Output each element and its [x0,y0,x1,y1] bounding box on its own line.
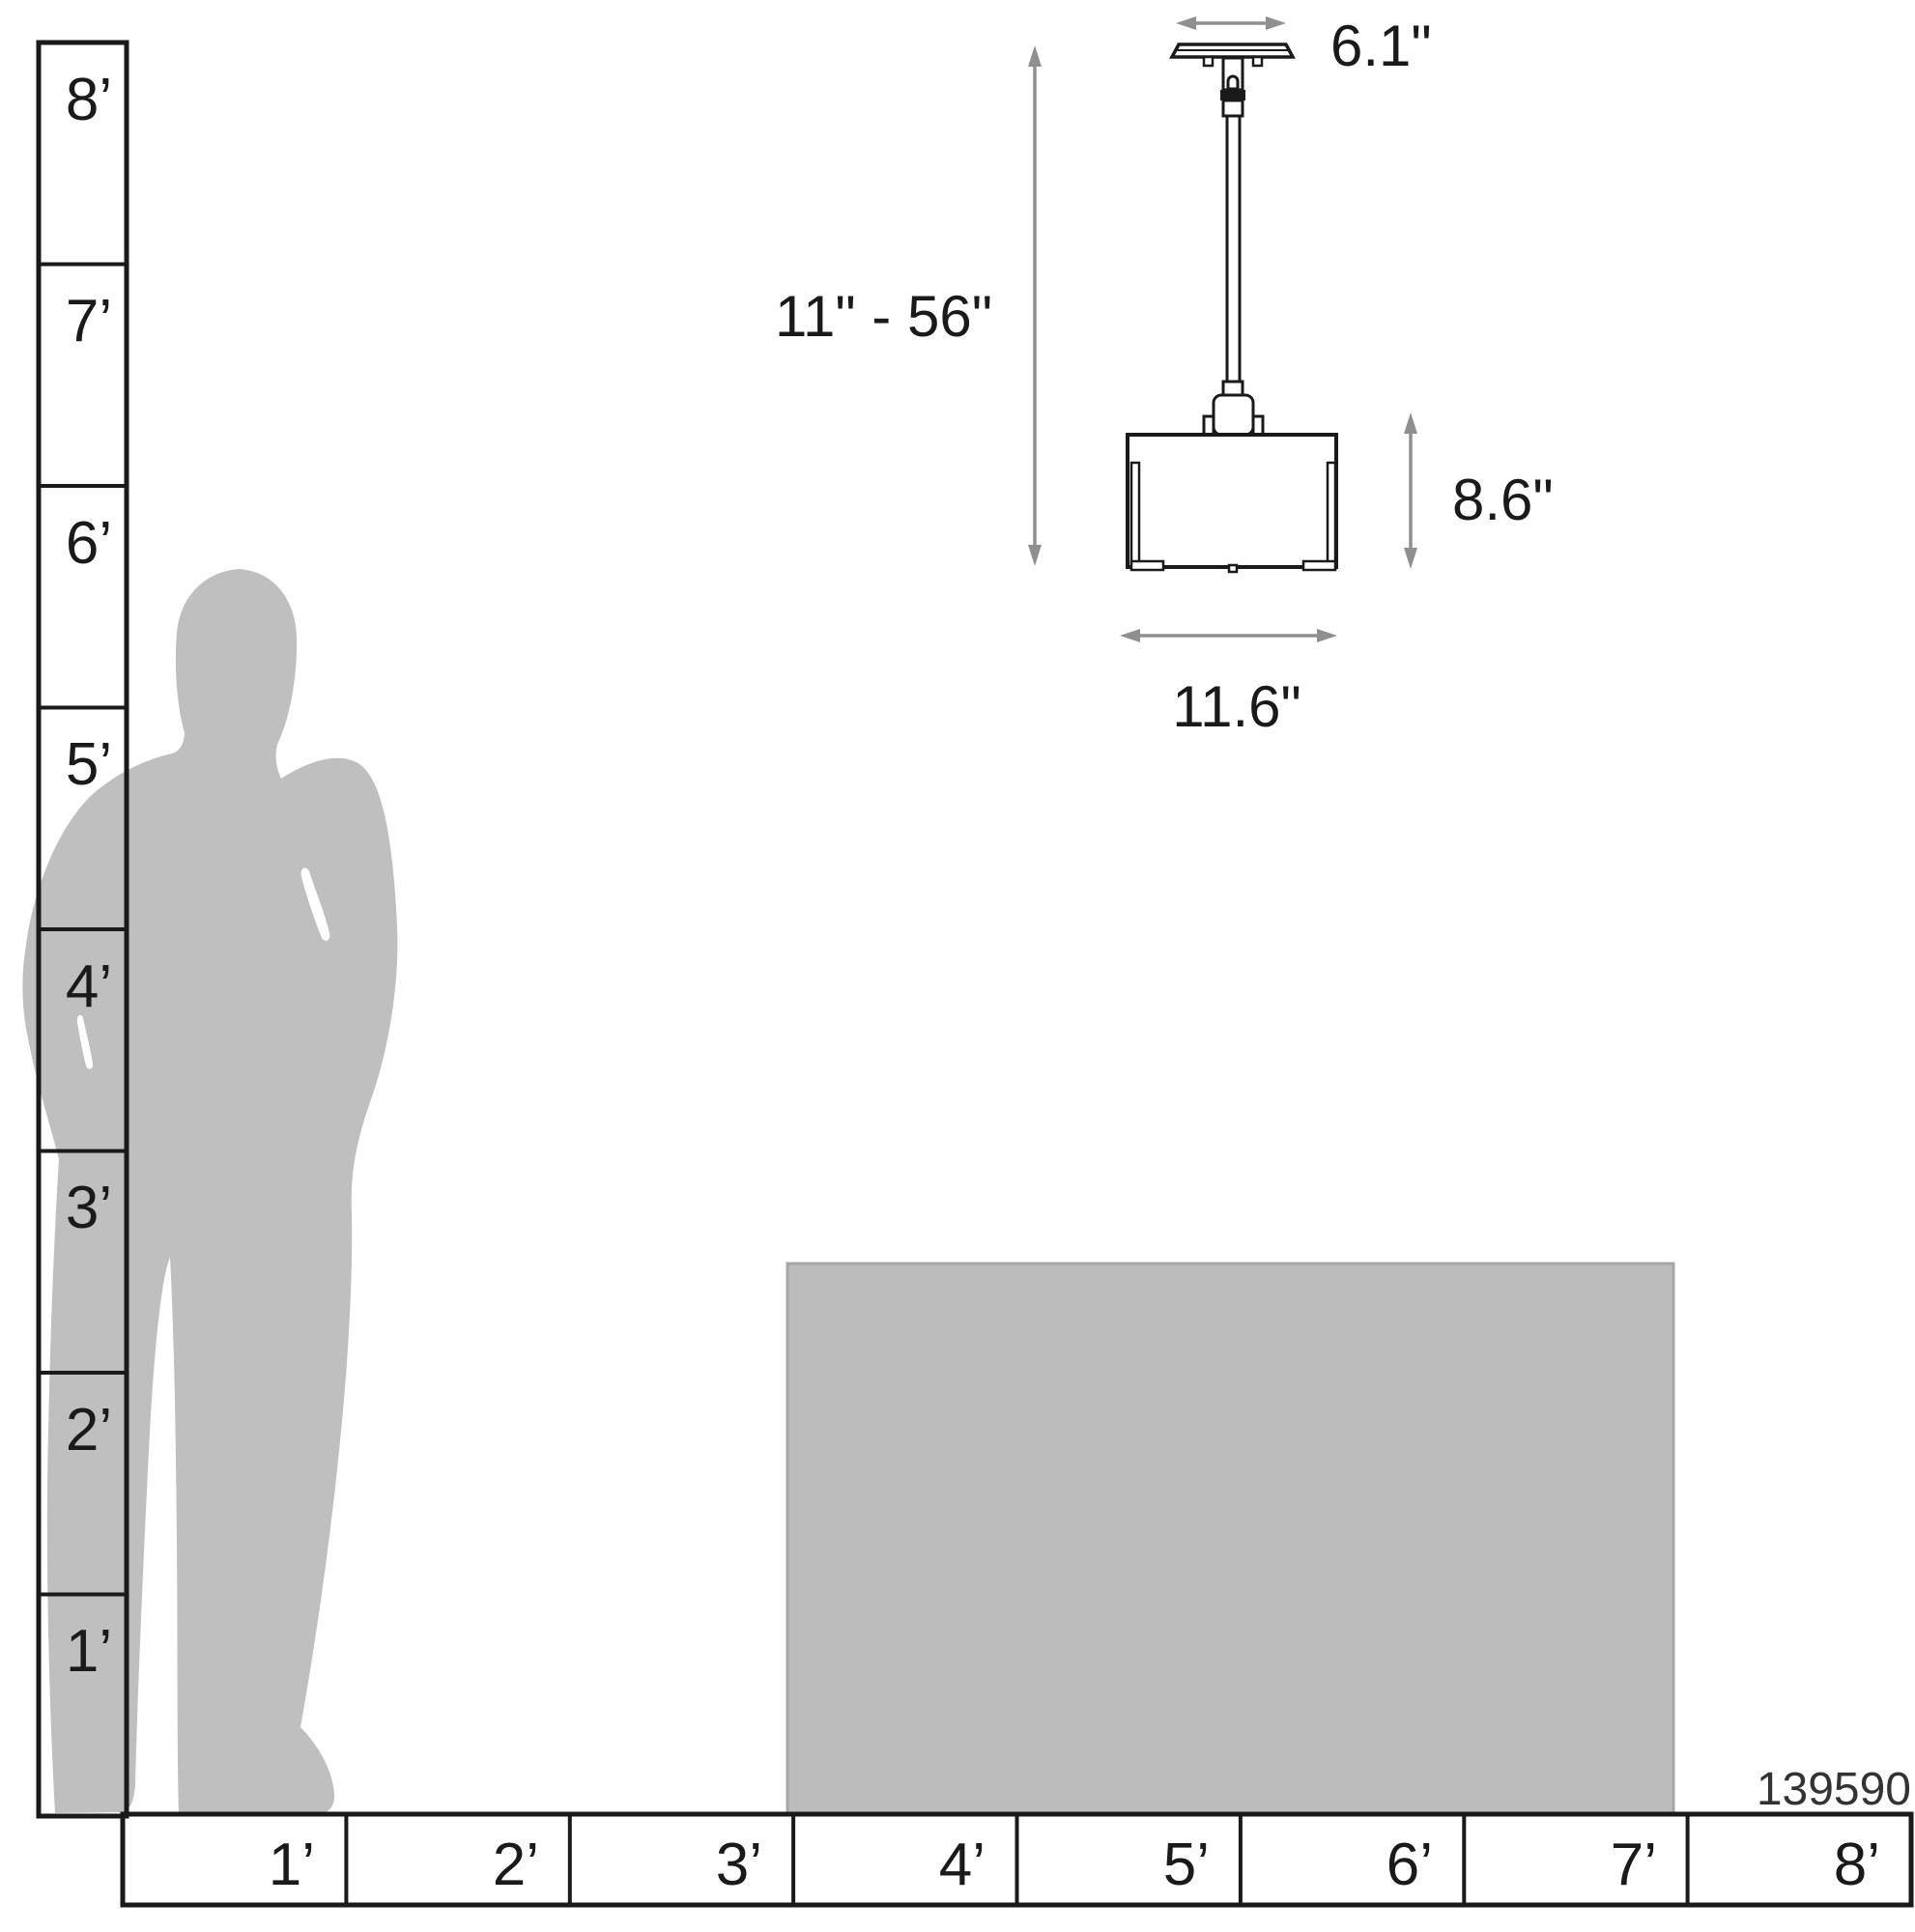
pendant-bracket-bar [1131,463,1139,569]
vertical-ruler-label: 6’ [66,510,112,577]
pendant-cap-ear [1204,416,1214,435]
horizontal-ruler-label: 1’ [269,1832,315,1898]
horizontal-ruler-label: 4’ [939,1832,986,1898]
horizontal-ruler-label: 7’ [1611,1832,1657,1898]
pendant-collar [1220,90,1245,100]
canopy-width-label: 6.1" [1330,14,1432,78]
pendant-swivel-loop [1228,76,1238,89]
horizontal-ruler-label: 6’ [1386,1832,1433,1898]
horizontal-ruler-label: 3’ [716,1832,762,1898]
arrowhead-down-icon [1028,545,1042,566]
shade-height-label: 8.6" [1452,468,1554,532]
pendant-fixture [1128,44,1336,572]
vertical-ruler-label: 7’ [66,288,112,355]
hanging-height-label: 11" - 56" [775,284,992,349]
pendant-cap-ear [1253,416,1263,435]
vertical-ruler-label: 5’ [66,731,112,798]
pendant-bracket-foot [1131,561,1163,570]
horizontal-ruler-label: 5’ [1163,1832,1210,1898]
arrowhead-right-icon [1317,629,1337,642]
horizontal-ruler-label: 2’ [493,1832,539,1898]
arrowhead-up-icon [1028,45,1042,67]
pendant-coupler [1223,100,1243,116]
pendant-shade [1128,435,1336,567]
pendant-cap [1214,395,1253,435]
arrowhead-left-icon [1120,629,1140,642]
horizontal-ruler: 1’ 2’ 3’ 4’ 5’ 6’ 7’ 8’ [123,1814,1911,1905]
shade-width-label: 11.6" [1172,674,1301,739]
scale-diagram: 8’ 7’ 6’ 5’ 4’ 3’ 2’ 1’ 1’ 2’ 3’ 4’ 5’ 6… [0,0,1915,1932]
product-number: 139590 [1757,1764,1911,1815]
arrowhead-right-icon [1266,16,1286,30]
pendant-canopy-tab [1204,57,1213,66]
pendant-bracket-bar [1328,463,1335,569]
arrowhead-left-icon [1176,16,1196,30]
pendant-lower-collar [1223,382,1243,395]
pendant-rod [1227,116,1240,382]
horizontal-ruler-label: 8’ [1834,1832,1880,1898]
vertical-ruler-label: 3’ [66,1175,112,1241]
vertical-ruler-label: 2’ [66,1397,112,1463]
arrowhead-down-icon [1404,548,1417,569]
pendant-bracket-foot [1303,561,1335,570]
table-shape [787,1264,1673,1814]
pendant-canopy-tab [1253,57,1262,66]
vertical-ruler-label: 8’ [66,67,112,133]
vertical-ruler-label: 4’ [66,953,112,1020]
vertical-ruler-label: 1’ [66,1618,112,1685]
pendant-finial [1229,565,1237,572]
arrowhead-up-icon [1404,412,1417,434]
